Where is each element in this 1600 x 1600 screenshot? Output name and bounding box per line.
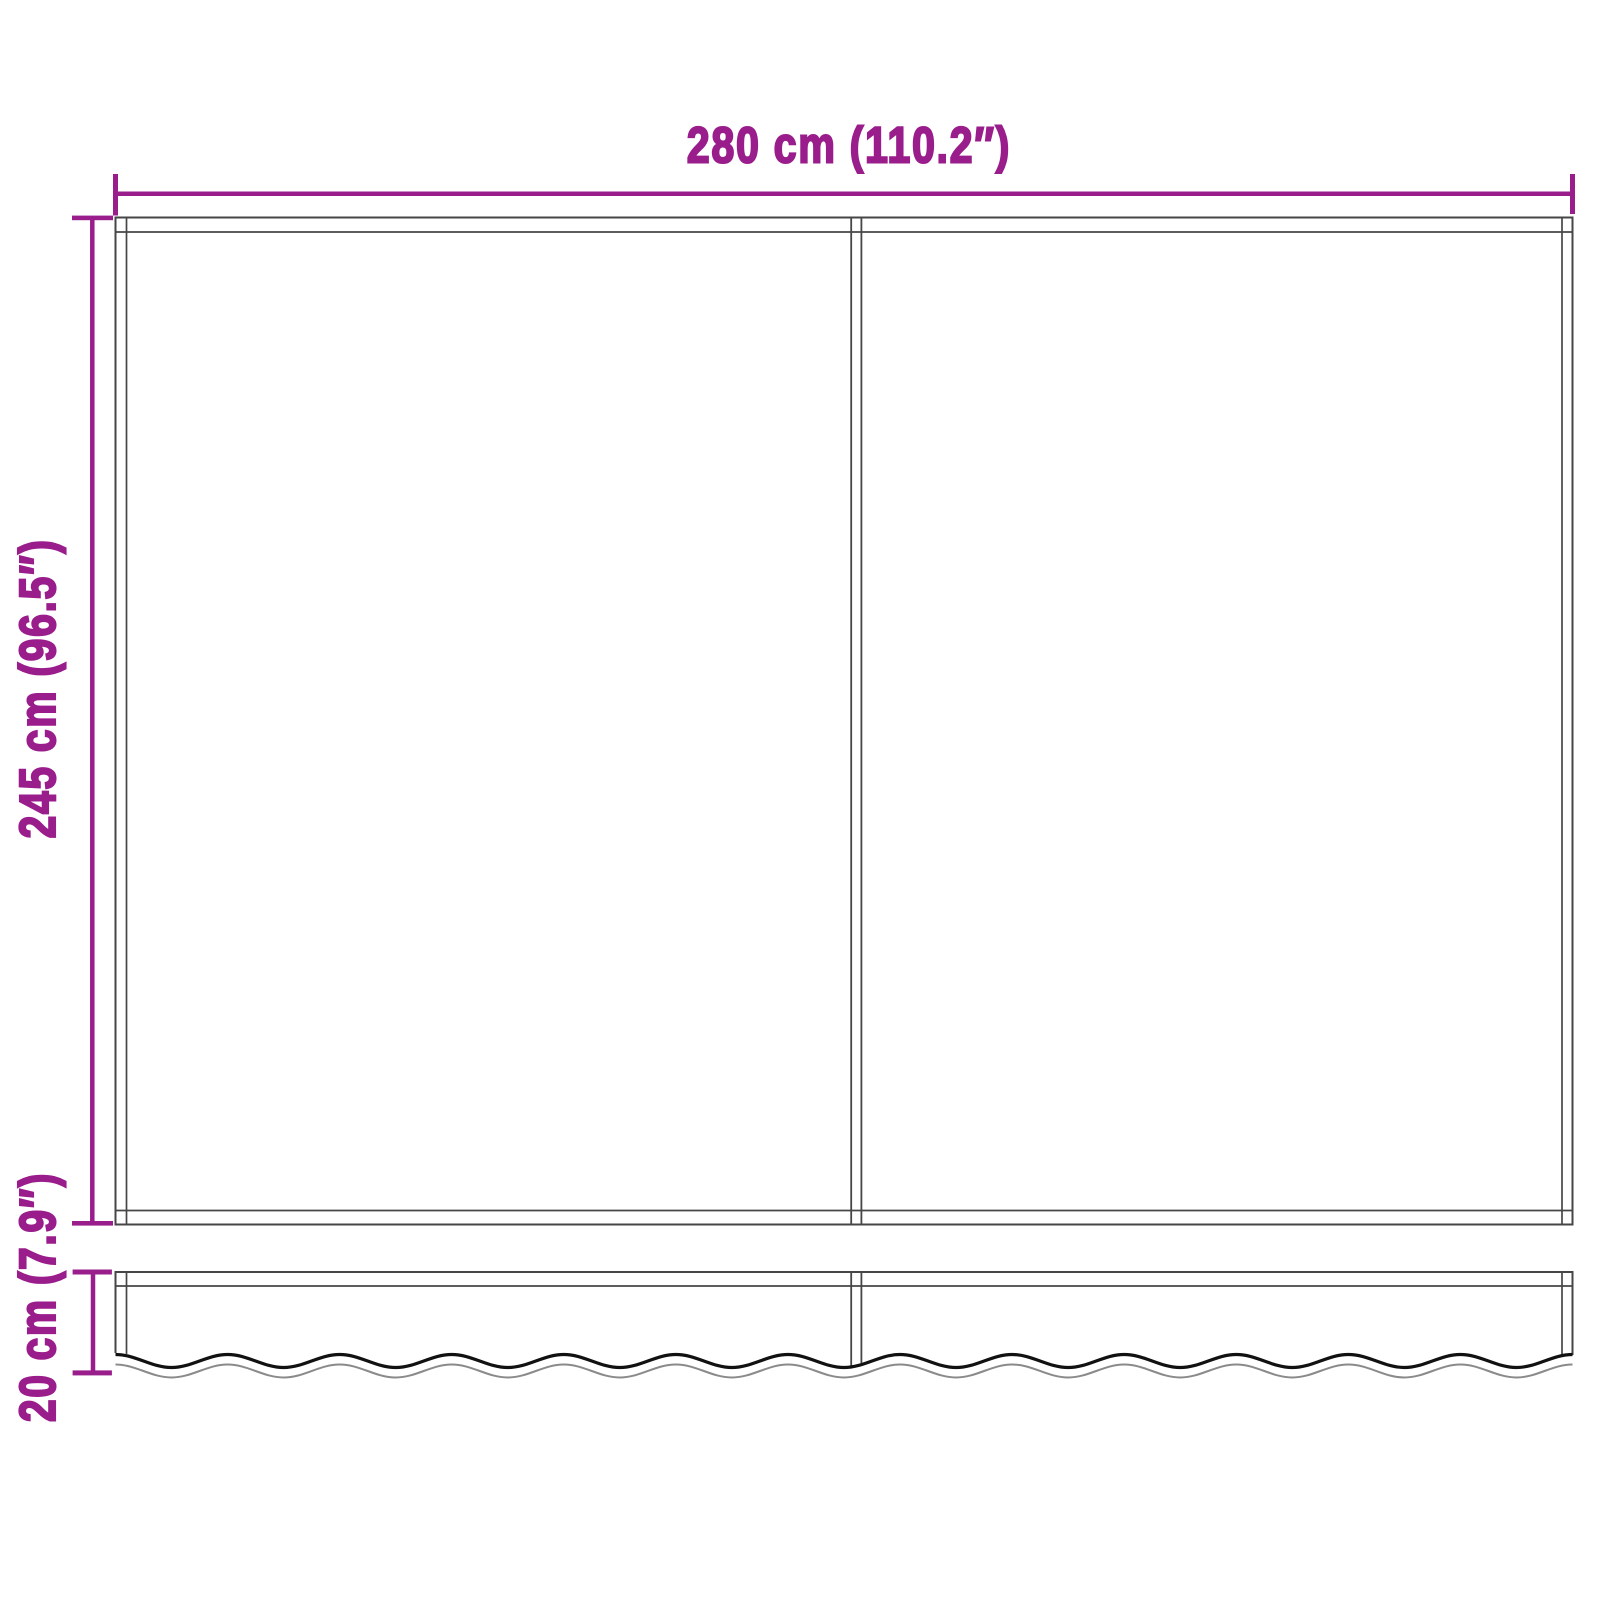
svg-text:280 cm (110.2″): 280 cm (110.2″) <box>687 116 1011 173</box>
svg-text:20 cm (7.9″): 20 cm (7.9″) <box>9 1172 66 1422</box>
svg-text:245 cm (96.5″): 245 cm (96.5″) <box>9 538 66 838</box>
